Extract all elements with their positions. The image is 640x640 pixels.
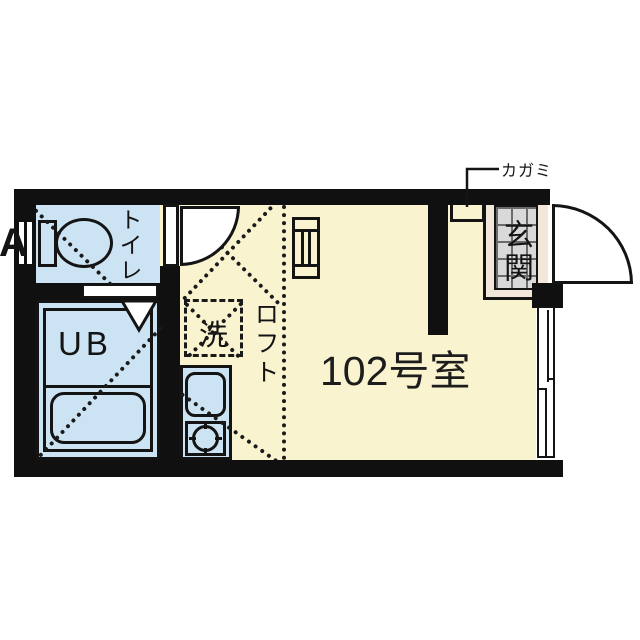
wall-bottom bbox=[14, 460, 563, 477]
loft-ladder bbox=[292, 217, 320, 279]
toilet-door-leaf bbox=[163, 204, 179, 267]
bath-label: UB bbox=[58, 325, 112, 363]
wall-right-block bbox=[532, 283, 563, 308]
floorplan-102: トイレ UB 洗 ロフト 102号室 玄関 カガミ bbox=[0, 0, 640, 640]
loft-label: ロフト bbox=[252, 301, 277, 388]
entrance-label: 玄関 bbox=[500, 219, 530, 285]
wall-entrance-partition bbox=[428, 205, 448, 335]
vent-symbol: A bbox=[0, 221, 28, 266]
wall-top bbox=[14, 189, 550, 205]
mirror bbox=[450, 205, 485, 222]
wall-vertical-inner bbox=[160, 266, 180, 460]
toilet-label: トイレ bbox=[117, 208, 140, 283]
unit-bath-divider bbox=[45, 385, 151, 388]
mirror-label: カガミ bbox=[501, 157, 552, 181]
right-window bbox=[537, 306, 555, 458]
kitchen-burner-box bbox=[185, 421, 226, 456]
room-number-label: 102号室 bbox=[320, 337, 470, 397]
shelf bbox=[82, 284, 158, 298]
entrance-door-swing bbox=[552, 204, 633, 284]
loft-boundary-dotted-line bbox=[282, 205, 286, 460]
bathtub bbox=[50, 392, 146, 444]
